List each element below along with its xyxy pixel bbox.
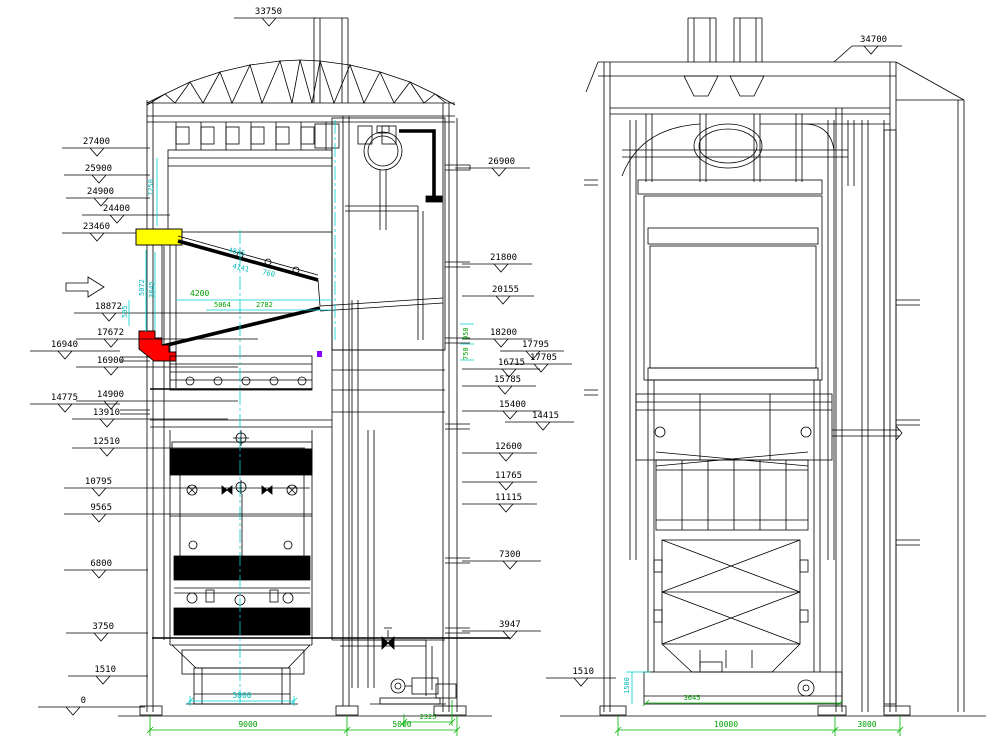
elevation-mark: 7300 — [462, 550, 541, 569]
elevation-label: 14900 — [97, 390, 124, 400]
dim-label: 5064 — [214, 301, 231, 309]
elevation-label: 6800 — [90, 559, 112, 569]
elevation-label: 23460 — [83, 222, 110, 232]
elevation-label: 12600 — [495, 442, 522, 452]
elevation-label: 7300 — [499, 550, 521, 560]
elevation-label: 17705 — [530, 353, 557, 363]
elevation-label: 27400 — [83, 137, 110, 147]
elevation-label: 11115 — [495, 493, 522, 503]
dim-label: 1500 — [623, 677, 631, 694]
elevation-label: 17795 — [522, 340, 549, 350]
dim-label: 5000 — [392, 720, 411, 729]
elevation-label: 13910 — [93, 408, 120, 418]
elevation-label: 17672 — [97, 328, 124, 338]
elevation-label: 34700 — [860, 35, 887, 45]
elevation-mark: 6800 — [64, 559, 148, 578]
elevation-mark: 15400 — [462, 400, 541, 419]
dim-label: 595 — [121, 305, 129, 318]
elevation-mark: 26900 — [455, 157, 530, 176]
elevation-mark: 0 — [38, 696, 145, 715]
elevation-label: 16900 — [97, 356, 124, 366]
dim-label: 3645 — [684, 694, 701, 702]
elevation-mark: 14900 — [76, 390, 238, 409]
dim-label: 760 — [262, 268, 276, 279]
right-view-structure — [560, 18, 986, 716]
elevation-label: 11765 — [495, 471, 522, 481]
elevation-label: 1510 — [94, 665, 116, 675]
elevation-mark: 3947 — [462, 620, 541, 639]
elevation-label: 1510 — [572, 667, 594, 677]
elevation-label: 12510 — [93, 437, 120, 447]
elevation-label: 24400 — [103, 204, 130, 214]
elevation-label: 14415 — [532, 411, 559, 421]
elevation-label: 25900 — [85, 164, 112, 174]
elevation-mark: 13910 — [72, 408, 228, 427]
elevation-mark: 33750 — [234, 7, 316, 26]
elevation-mark: 21800 — [462, 253, 532, 272]
elevation-label: 16715 — [498, 358, 525, 368]
elevation-label: 21800 — [490, 253, 517, 263]
dim-label: 7250 — [147, 179, 155, 196]
dim-label: 2325 — [420, 713, 437, 721]
cad-canvas: 33750 27400 25900 24900 24400 23460 1887… — [0, 0, 992, 744]
dim-label: 5072 — [138, 279, 146, 296]
dim-label: 4200 — [190, 289, 209, 298]
elevation-mark: 25900 — [64, 164, 150, 183]
elevation-mark: 23460 — [62, 222, 136, 241]
elevation-mark: 20155 — [462, 285, 534, 304]
dim-label: 750 — [462, 347, 470, 360]
elevation-label: 9565 — [90, 503, 112, 513]
elevation-mark: 27400 — [62, 137, 150, 156]
elevation-mark: 34700 — [834, 35, 902, 62]
elevation-label: 0 — [81, 696, 86, 706]
dim-label: 9000 — [238, 720, 257, 729]
boiler-elevation-drawing: 33750 27400 25900 24900 24400 23460 1887… — [0, 0, 992, 744]
dim-label: 2782 — [256, 301, 273, 309]
elevation-mark: 11115 — [462, 493, 537, 512]
dim-label: 3000 — [857, 720, 876, 729]
elevation-label: 15785 — [494, 375, 521, 385]
elevation-mark: 1510 — [546, 667, 616, 686]
elevation-mark: 12600 — [462, 442, 537, 461]
dim-label: 950 — [462, 327, 470, 340]
dim-label: 3845 — [148, 281, 156, 298]
dim-label: 10000 — [714, 720, 738, 729]
elevation-mark: 1510 — [68, 665, 148, 684]
dim-label: 5000 — [232, 691, 251, 700]
elevation-label: 18872 — [95, 302, 122, 312]
elevation-marks-right: 26900 21800 20155 18200 17795 17705 1671… — [455, 157, 574, 639]
elevation-label: 10795 — [85, 477, 112, 487]
elevation-mark: 3750 — [66, 622, 148, 641]
elevation-mark: 14415 — [505, 411, 574, 430]
elevation-label: 3750 — [92, 622, 114, 632]
elevation-label: 24900 — [87, 187, 114, 197]
elevation-label: 18200 — [490, 328, 517, 338]
elevation-label: 15400 — [499, 400, 526, 410]
elevation-label: 14775 — [51, 393, 78, 403]
elevation-marks-right-view: 34700 1510 — [546, 35, 902, 686]
elevation-label: 20155 — [492, 285, 519, 295]
elevation-label: 26900 — [488, 157, 515, 167]
elevation-mark: 10795 — [64, 477, 310, 496]
dim-label: 4141 — [232, 262, 250, 274]
elevation-label: 33750 — [255, 7, 282, 17]
elevation-mark: 15785 — [462, 375, 536, 394]
elevation-label: 3947 — [499, 620, 521, 630]
elevation-mark: 11765 — [462, 471, 537, 490]
elevation-mark: 9565 — [64, 503, 312, 522]
elevation-label: 16940 — [51, 340, 78, 350]
